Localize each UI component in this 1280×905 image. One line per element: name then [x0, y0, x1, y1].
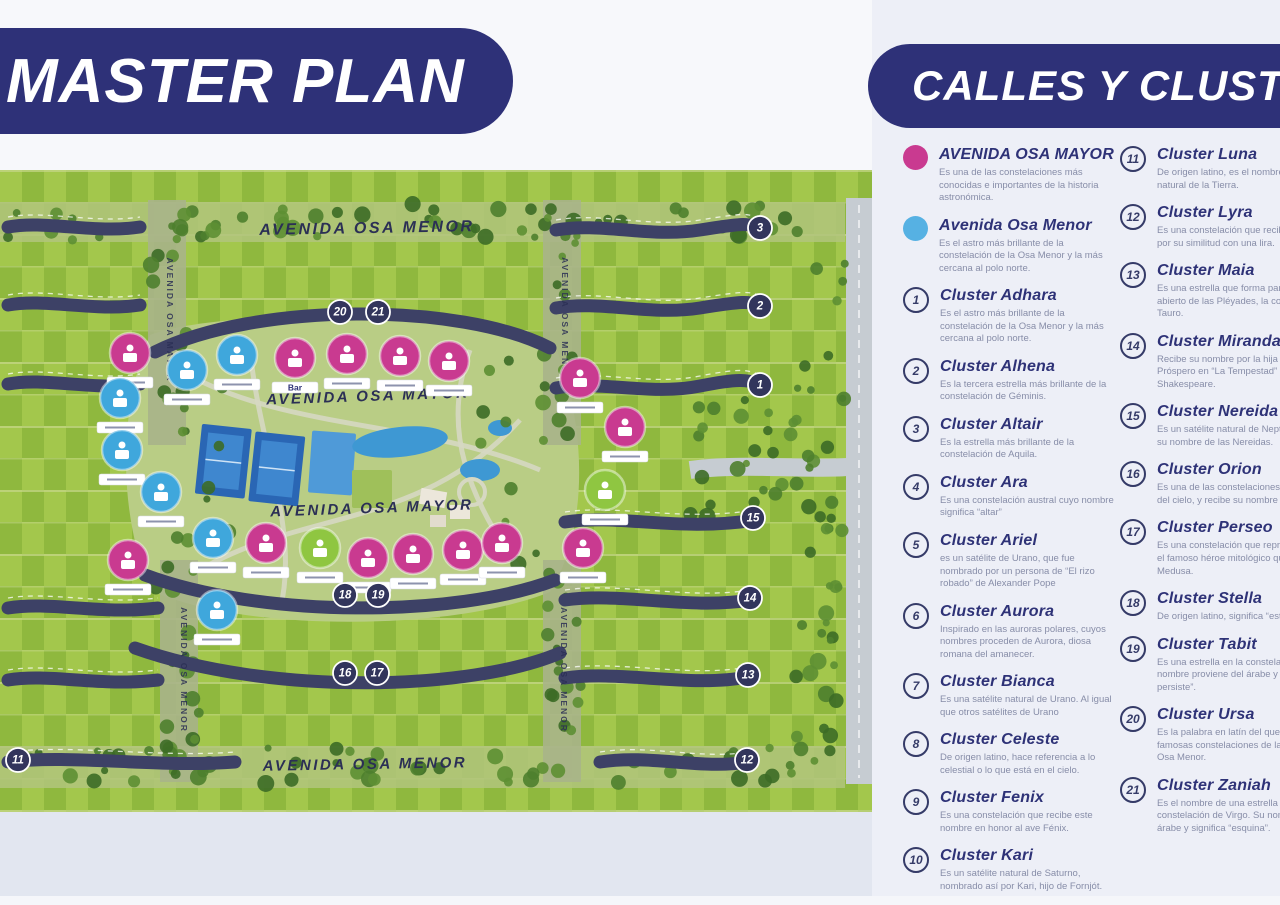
tree: [730, 461, 746, 477]
cluster-number-badge: 15: [1120, 403, 1146, 429]
tree: [733, 409, 748, 424]
badge-number: 20: [333, 307, 347, 319]
tree: [128, 775, 140, 787]
tree: [790, 477, 804, 491]
badge-number: 17: [371, 668, 384, 680]
cluster-number-badge: 18: [1120, 590, 1146, 616]
amenity-icon: [622, 419, 629, 426]
cluster-description: Inspirado en las auroras polares, cuyos …: [940, 624, 1115, 662]
cluster-name: Cluster Ursa: [1157, 706, 1280, 724]
cluster-name: Cluster Adhara: [940, 287, 1117, 305]
amenity-icon: [577, 370, 584, 377]
amenity-tag-text: [107, 479, 137, 481]
legend-cluster-entry: 14 Cluster Miranda Recibe su nombre por …: [1120, 333, 1280, 392]
cluster-name: Cluster Maia: [1157, 262, 1280, 280]
tree: [172, 219, 188, 235]
cluster-number-badge: 16: [1120, 461, 1146, 487]
street: [8, 606, 158, 610]
tree: [542, 601, 553, 612]
street: [600, 760, 748, 765]
street: [565, 676, 748, 681]
road-number-badge: 12: [735, 748, 759, 772]
amenity-marker: [377, 336, 423, 391]
tree: [101, 767, 108, 774]
legend-avenida-entry: AVENIDA OSA MAYOR Es una de las constela…: [903, 146, 1117, 205]
cluster-description: es un satélite de Urano, que fue nombrad…: [940, 553, 1115, 591]
tree: [801, 499, 816, 514]
tree: [794, 385, 801, 392]
map-bottom-background: [0, 812, 872, 896]
tree: [827, 637, 834, 644]
tree: [160, 739, 174, 753]
tree: [476, 405, 490, 419]
road-number-badge: 19: [366, 583, 390, 607]
cluster-name: Cluster Orion: [1157, 461, 1280, 479]
amenity-icon: [365, 550, 372, 557]
amenity-marker: [214, 335, 260, 390]
tree: [544, 214, 552, 222]
legend-title: CALLES Y CLUSTERS: [868, 44, 1280, 128]
legend-cluster-entry: 10 Cluster Kari Es un satélite natural d…: [903, 847, 1117, 893]
road-number-badge: 17: [365, 661, 389, 685]
amenity-marker: [602, 407, 648, 462]
tree: [726, 200, 741, 215]
tree: [807, 386, 815, 394]
amenity-icon: [580, 540, 587, 547]
tree: [765, 769, 780, 784]
cluster-name: Cluster Kari: [940, 847, 1117, 865]
cluster-number-badge: 3: [903, 416, 929, 442]
cluster-description: Es la palabra en latín del que proviene …: [1157, 727, 1280, 765]
cluster-description: Es una constelación que recibe este nomb…: [940, 810, 1115, 835]
cluster-number-badge: 6: [903, 603, 929, 629]
cluster-description: Recibe su nombre por la hija del mago Pr…: [1157, 354, 1280, 392]
tree: [144, 746, 154, 756]
avenida-description: Es una de las constelaciones más conocid…: [939, 167, 1114, 205]
legend-cluster-entry: 1 Cluster Adhara Es el astro más brillan…: [903, 287, 1117, 346]
tree: [811, 757, 819, 765]
tree: [832, 296, 841, 305]
cluster-number-badge: 12: [1120, 204, 1146, 230]
road-number-badge: 1: [748, 373, 772, 397]
cluster-name: Cluster Perseo: [1157, 519, 1280, 537]
amenity-tag-text: [385, 385, 415, 387]
tree: [68, 235, 77, 244]
cluster-number-badge: 21: [1120, 777, 1146, 803]
tree: [428, 204, 439, 215]
tree: [50, 208, 63, 221]
legend-cluster-entry: 16 Cluster Orion Es una de las constelac…: [1120, 461, 1280, 507]
tree: [821, 441, 834, 454]
cluster-number-badge: 20: [1120, 706, 1146, 732]
tree: [826, 514, 835, 523]
cluster-description: Es un satélite natural de Neptuno que re…: [1157, 424, 1280, 449]
legend-cluster-entry: 9 Cluster Fenix Es una constelación que …: [903, 789, 1117, 835]
amenity-icon: [410, 546, 417, 553]
tree: [345, 747, 354, 756]
tree: [257, 775, 274, 792]
legend-cluster-entry: 3 Cluster Altair Es la estrella más bril…: [903, 416, 1117, 462]
amenity-marker: [190, 518, 236, 573]
legend-cluster-entry: 17 Cluster Perseo Es una constelación qu…: [1120, 519, 1280, 578]
road-number-badge: 2: [748, 294, 772, 318]
amenity-icon: [123, 353, 137, 362]
tree: [571, 239, 579, 247]
tree: [786, 761, 795, 770]
tree: [178, 427, 188, 437]
calles-clusters-title: CALLES Y CLUSTERS: [912, 62, 1280, 110]
amenity-icon: [495, 543, 509, 552]
amenity-icon: [397, 348, 404, 355]
legend-cluster-entry: 21 Cluster Zaniah Es el nombre de una es…: [1120, 777, 1280, 836]
tree: [789, 670, 803, 684]
amenity-icon: [618, 427, 632, 436]
legend-avenida-entry: Avenida Osa Menor Es el astro más brilla…: [903, 217, 1117, 276]
tree: [611, 775, 626, 790]
amenity-icon: [292, 350, 299, 357]
amenity-icon: [446, 353, 453, 360]
cluster-number-badge: 10: [903, 847, 929, 873]
legend-cluster-entry: 18 Cluster Stella De origen latino, sign…: [1120, 590, 1280, 624]
cluster-name: Cluster Fenix: [940, 789, 1117, 807]
amenity-tag-text: [113, 589, 143, 591]
tree: [707, 402, 720, 415]
amenity-tag-text: [487, 572, 517, 574]
tree: [205, 222, 221, 238]
badge-number: 16: [339, 668, 352, 680]
amenity-marker: [324, 334, 370, 389]
tree: [3, 232, 13, 242]
tree: [763, 426, 772, 435]
road-number-badge: 20: [328, 300, 352, 324]
amenity-icon: [456, 550, 470, 559]
tree: [214, 441, 225, 452]
legend-cluster-entry: 6 Cluster Aurora Inspirado en las aurora…: [903, 603, 1117, 662]
amenity-icon: [460, 542, 467, 549]
amenity-tag-text: [202, 639, 232, 641]
legend-column-1: AVENIDA OSA MAYOR Es una de las constela…: [903, 146, 1117, 905]
badge-number: 11: [12, 755, 24, 767]
street: [556, 303, 762, 311]
amenity-tag-text: [398, 583, 428, 585]
tree: [490, 201, 506, 217]
amenity-marker: [390, 534, 436, 589]
amenity-marker: Bar: [272, 338, 318, 393]
cluster-description: Es el astro más brillante de la constela…: [940, 308, 1115, 346]
amenity-icon: [210, 530, 217, 537]
tree: [143, 257, 159, 273]
cluster-description: De origen latino, significa “estrella”.: [1157, 611, 1280, 624]
master-plan-poster: { "titles": { "master_plan": "MASTER PLA…: [0, 0, 1280, 896]
tree: [791, 731, 803, 743]
legend-cluster-entry: 4 Cluster Ara Es una constelación austra…: [903, 474, 1117, 520]
legend-cluster-entry: 5 Cluster Ariel es un satélite de Urano,…: [903, 532, 1117, 591]
street: [565, 598, 750, 603]
street: [556, 225, 760, 233]
avenida-color-dot: [903, 216, 928, 241]
legend-cluster-entry: 7 Cluster Bianca Es una satélite natural…: [903, 673, 1117, 719]
amenity-icon: [263, 535, 270, 542]
avenida-color-dot: [903, 145, 928, 170]
legend-column-2: 11 Cluster Luna De origen latino, es el …: [1120, 146, 1280, 847]
tree: [173, 235, 181, 243]
cluster-description: Es una estrella en la constelación de Or…: [1157, 657, 1280, 695]
legend-cluster-entry: 20 Cluster Ursa Es la palabra en latín d…: [1120, 706, 1280, 765]
tree: [805, 547, 816, 558]
badge-number: 15: [747, 513, 760, 525]
tree: [815, 511, 826, 522]
badge-number: 12: [741, 755, 754, 767]
street: [8, 759, 235, 763]
amenity-tag-text: [434, 390, 464, 392]
tree: [759, 486, 768, 495]
tree: [837, 392, 851, 406]
tree: [539, 436, 548, 445]
entrance-road: [690, 467, 848, 470]
tree: [545, 688, 558, 701]
tree: [517, 225, 527, 235]
amenity-icon: [344, 346, 351, 353]
tree: [787, 769, 796, 778]
amenity-icon: [576, 548, 590, 557]
amenity-tag-text: [172, 399, 202, 401]
cluster-name: Cluster Celeste: [940, 731, 1117, 749]
cluster-name: Cluster Ariel: [940, 532, 1117, 550]
amenity-icon: [158, 484, 165, 491]
tree: [697, 422, 708, 433]
tree: [705, 500, 715, 510]
tree: [748, 444, 761, 457]
amenity-tag-text: [305, 577, 335, 579]
court: [308, 431, 356, 496]
tree: [525, 203, 537, 215]
amenity-marker: [138, 472, 184, 527]
cluster-name: Cluster Altair: [940, 416, 1117, 434]
amenity-marker: [243, 523, 289, 578]
legend-cluster-entry: 19 Cluster Tabit Es una estrella en la c…: [1120, 636, 1280, 695]
tree: [693, 401, 705, 413]
tree: [330, 742, 344, 756]
cluster-description: Es una constelación que representa a Per…: [1157, 540, 1280, 578]
cluster-number-badge: 9: [903, 789, 929, 815]
amenity-icon: [125, 552, 132, 559]
tree: [190, 735, 199, 744]
cluster-number-badge: 1: [903, 287, 929, 313]
cluster-name: Cluster Nereida: [1157, 403, 1280, 421]
tree: [802, 450, 815, 463]
tree: [838, 277, 847, 286]
tree: [531, 234, 538, 241]
cluster-number-badge: 8: [903, 731, 929, 757]
avenida-description: Es el astro más brillante de la constela…: [939, 238, 1114, 276]
amenity-icon: [259, 543, 273, 552]
tree: [484, 365, 495, 376]
tree: [504, 482, 517, 495]
amenity-icon: [340, 354, 354, 363]
tree: [764, 408, 773, 417]
tree: [810, 262, 823, 275]
tree: [477, 229, 493, 245]
tree: [203, 496, 210, 503]
tree: [768, 487, 782, 501]
badge-number: 14: [744, 593, 757, 605]
cluster-description: Es una estrella que forma parte del cúmu…: [1157, 283, 1280, 321]
master-plan-map: AVENIDA OSA MENORAVENIDA OSA MAYORAVENID…: [0, 170, 872, 812]
amenity-tag-text: [590, 519, 620, 521]
tree: [841, 260, 849, 268]
cluster-name: Cluster Tabit: [1157, 636, 1280, 654]
amenity-tag-text: [610, 456, 640, 458]
tree: [405, 196, 421, 212]
tree: [368, 773, 381, 786]
cluster-description: Es una de las constelaciones más conocid…: [1157, 482, 1280, 507]
amenity-tag-text: [332, 383, 362, 385]
badge-number: 1: [757, 380, 763, 392]
amenity-icon: [602, 482, 609, 489]
cluster-description: De origen latino, hace referencia a lo c…: [940, 752, 1115, 777]
tree: [784, 428, 798, 442]
tree: [487, 748, 503, 764]
cluster-number-badge: 7: [903, 673, 929, 699]
road-number-badge: 14: [738, 586, 762, 610]
cluster-name: Cluster Lyra: [1157, 204, 1280, 222]
tree: [527, 767, 539, 779]
tree: [825, 496, 838, 509]
tree: [818, 605, 834, 621]
road-number-badge: 18: [333, 583, 357, 607]
tree: [560, 426, 575, 441]
tree: [87, 773, 102, 788]
tree: [830, 661, 838, 669]
badge-number: 2: [756, 301, 764, 313]
tree: [788, 418, 798, 428]
amenity-tag-text: [198, 567, 228, 569]
amenity-marker: [479, 523, 525, 578]
tree: [826, 582, 833, 589]
tree: [504, 778, 513, 787]
tree: [797, 620, 807, 630]
tree: [160, 719, 175, 734]
cluster-name: Cluster Zaniah: [1157, 777, 1280, 795]
amenity-tag-label: Bar: [288, 383, 303, 393]
amenity-marker: [194, 590, 240, 645]
page-title: MASTER PLAN: [0, 28, 513, 134]
tree: [767, 447, 779, 459]
tree: [332, 207, 343, 218]
cluster-description: Es una constelación que recibe este nomb…: [1157, 225, 1280, 250]
tree: [190, 769, 207, 786]
amenity-icon: [317, 540, 324, 547]
tree: [552, 412, 567, 427]
amenity-icon: [214, 602, 221, 609]
cluster-description: Es un satélite natural de Saturno, nombr…: [940, 868, 1115, 893]
cluster-description: Es la tercera estrella más brillante de …: [940, 379, 1115, 404]
tree: [829, 693, 844, 708]
amenity-icon: [115, 450, 129, 459]
tree: [573, 697, 584, 708]
amenity-icon: [113, 398, 127, 407]
tree: [805, 464, 813, 472]
tree: [551, 764, 565, 778]
legend-cluster-entry: 8 Cluster Celeste De origen latino, hace…: [903, 731, 1117, 777]
street: [8, 303, 140, 307]
amenity-marker: [99, 430, 145, 485]
cluster-number-badge: 19: [1120, 636, 1146, 662]
amenity-marker: [297, 528, 343, 583]
amenity-tag-text: [251, 572, 281, 574]
tree: [823, 728, 838, 743]
amenity-icon: [361, 558, 375, 567]
amenity-icon: [127, 345, 134, 352]
tree: [63, 768, 78, 783]
legend-cluster-entry: 15 Cluster Nereida Es un satélite natura…: [1120, 403, 1280, 449]
cluster-number-badge: 17: [1120, 519, 1146, 545]
cluster-name: Cluster Alhena: [940, 358, 1117, 376]
road-number-badge: 16: [333, 661, 357, 685]
badge-number: 21: [371, 307, 385, 319]
amenity-tag-text: [146, 521, 176, 523]
badge-number: 18: [339, 590, 352, 602]
tree: [824, 745, 835, 756]
road-number-badge: 13: [736, 663, 760, 687]
cluster-number-badge: 11: [1120, 146, 1146, 172]
tree: [541, 628, 554, 641]
cluster-description: Es una constelación austral cuyo nombre …: [940, 495, 1115, 520]
amenity-tag-text: [105, 427, 135, 429]
master-plan-title: MASTER PLAN: [6, 46, 465, 117]
tree: [823, 619, 830, 626]
tree: [500, 417, 511, 428]
amenity-marker: [105, 540, 151, 595]
cluster-number-badge: 2: [903, 358, 929, 384]
tree: [835, 524, 848, 537]
amenity-icon: [119, 442, 126, 449]
cluster-number-badge: 4: [903, 474, 929, 500]
amenity-icon: [442, 361, 456, 370]
tree: [171, 769, 181, 779]
tree: [799, 360, 810, 371]
tree: [171, 531, 184, 544]
tree: [540, 381, 550, 391]
amenity-icon: [393, 356, 407, 365]
tree: [146, 274, 160, 288]
tree: [765, 744, 773, 752]
tree: [265, 745, 272, 752]
street: [8, 678, 158, 682]
pool: [460, 459, 500, 481]
tree: [545, 203, 557, 215]
amenity-icon: [121, 560, 135, 569]
tree: [284, 773, 298, 787]
cluster-description: Es una satélite natural de Urano. Al igu…: [940, 694, 1115, 719]
amenity-tag-text: [568, 577, 598, 579]
cluster-description: Es el nombre de una estrella en la const…: [1157, 798, 1280, 836]
cluster-name: Cluster Miranda: [1157, 333, 1280, 351]
cluster-description: De origen latino, es el nombre del satél…: [1157, 167, 1280, 192]
tree: [695, 470, 709, 484]
tree: [475, 438, 486, 449]
amenity-icon: [184, 362, 191, 369]
badge-number: 3: [757, 223, 764, 235]
cluster-name: Cluster Bianca: [940, 673, 1117, 691]
amenity-tag-text: [565, 407, 595, 409]
cluster-number-badge: 14: [1120, 333, 1146, 359]
tree: [792, 226, 803, 237]
amenity-marker: [560, 528, 606, 583]
badge-number: 19: [372, 590, 385, 602]
vertical-street-label: AVENIDA OSA MENOR: [179, 607, 189, 733]
road-number-badge: 3: [748, 216, 772, 240]
